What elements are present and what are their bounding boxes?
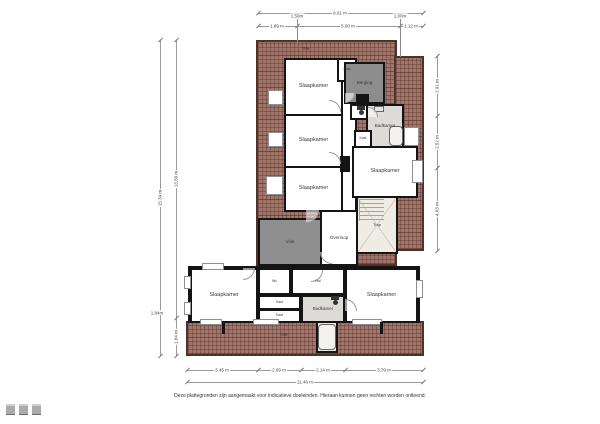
window-dormer-left-3 <box>266 176 283 195</box>
toilet-2 <box>331 296 340 306</box>
dormer-mark-2 <box>400 19 401 57</box>
dim-label: 2.14 m <box>315 367 331 372</box>
dim-tick <box>435 249 440 254</box>
room-trap: Trap <box>356 196 398 254</box>
floor-plan-page: DakDakSlaapkamerKastBergingBadkamerKastS… <box>0 0 600 424</box>
dim-label: 15.34 m <box>157 189 162 207</box>
dim-label: 1.89 m <box>269 23 285 28</box>
shaft-1 <box>356 94 369 104</box>
logo-mark-2 <box>19 404 28 415</box>
dim-label: 2.91 m <box>434 78 439 94</box>
room-kast-3: Kast <box>258 295 301 310</box>
room-vide-label: Vide <box>286 240 295 245</box>
logo-mark-1 <box>6 404 15 415</box>
dim-label: 4.03 m <box>434 201 439 217</box>
window-lower-left-2 <box>184 302 191 315</box>
dim-tick <box>421 24 426 29</box>
floor-plan-canvas: DakDakSlaapkamerKastBergingBadkamerKastS… <box>0 0 600 424</box>
dim-label: 5.00 m <box>340 23 356 28</box>
dim-label: 2.52 m <box>434 134 439 150</box>
dormer-mark-2-label: 1.00m <box>393 13 408 18</box>
wall-stub-2 <box>380 322 383 334</box>
dim-label: 1.84 m <box>173 329 178 345</box>
room-slaapkamer-3-label: Slaapkamer <box>299 186 328 192</box>
dim-tick <box>421 380 426 385</box>
room-slaapkamer-6-label: Slaapkamer <box>367 293 396 299</box>
dormer-mark-1-label: 1.50m <box>290 13 305 18</box>
dim-tick <box>158 354 163 359</box>
dim-tick <box>421 11 426 16</box>
room-slaapkamer-2-label: Slaapkamer <box>299 138 328 144</box>
room-slaapkamer-1-label: Slaapkamer <box>299 84 328 90</box>
room-kast-1-label: Kast <box>343 68 350 72</box>
room-trap-label: Trap <box>373 223 381 227</box>
room-wc-beneden: Wc <box>258 268 291 295</box>
roof-label: Dak <box>302 46 309 51</box>
room-slaapkamer-3: Slaapkamer <box>284 166 343 212</box>
shaft-2 <box>340 156 350 172</box>
shower-tray <box>318 324 336 350</box>
dim-label: 3.45 m <box>214 367 230 372</box>
dim-label: 8.01 m <box>332 10 348 15</box>
window-lower-left-1 <box>184 276 191 289</box>
dim-label: 13.50 m <box>173 170 178 188</box>
dim-label: 2.09 m <box>271 367 287 372</box>
window-bottom-3 <box>352 319 382 325</box>
logo-mark-3 <box>32 404 41 415</box>
room-wc-beneden-label: Wc <box>272 280 277 284</box>
roof-label: Dak <box>280 332 287 337</box>
window-bottom-1 <box>200 319 222 325</box>
room-vide: Vide <box>258 218 322 266</box>
room-berging-label: Berging <box>357 81 373 86</box>
dim-label: 11.46 m <box>296 379 314 384</box>
bathtub-1 <box>389 126 403 146</box>
dim-line <box>176 40 177 356</box>
window-bottom-2 <box>253 319 279 325</box>
window-dormer-right-2 <box>412 160 423 183</box>
room-kast-3-label: Kast <box>276 301 283 305</box>
window-dormer-left-2 <box>268 132 283 147</box>
room-badkamer-1-label: Badkamer <box>375 124 396 129</box>
toilet-2-bowl <box>333 300 338 305</box>
toilet-1-bowl <box>359 110 364 115</box>
room-slaapkamer-4: Slaapkamer <box>352 146 418 198</box>
dim-tick <box>421 368 426 373</box>
dim-mini-label: 1.84m <box>150 310 165 315</box>
wall-stub-1 <box>222 322 225 334</box>
window-lower-top <box>202 263 224 270</box>
dim-label: 3.79 m <box>376 367 392 372</box>
dim-label: 1.12 m <box>403 23 419 28</box>
window-dormer-left-1 <box>268 90 283 105</box>
room-slaapkamer-4-label: Slaapkamer <box>370 169 399 175</box>
room-kast-4-label: Kast <box>276 314 283 318</box>
window-lower-right <box>416 280 423 298</box>
room-hal-label: Hal <box>315 280 320 284</box>
room-slaapkamer-5-label: Slaapkamer <box>209 293 238 299</box>
dim-tick <box>174 354 179 359</box>
toilet-1 <box>357 106 366 116</box>
room-slaapkamer-6: Slaapkamer <box>345 268 418 323</box>
room-overloop-label: Overloop <box>330 236 348 241</box>
dormer-mark-1 <box>297 19 298 44</box>
window-dormer-right-1 <box>404 127 419 146</box>
room-badkamer-2-label: Badkamer <box>313 307 334 312</box>
disclaimer-text: Deze plattegronden zijn aangemaakt voor … <box>0 393 600 399</box>
logo-marks <box>6 404 41 415</box>
room-kast-2-label: Kast <box>359 137 366 141</box>
